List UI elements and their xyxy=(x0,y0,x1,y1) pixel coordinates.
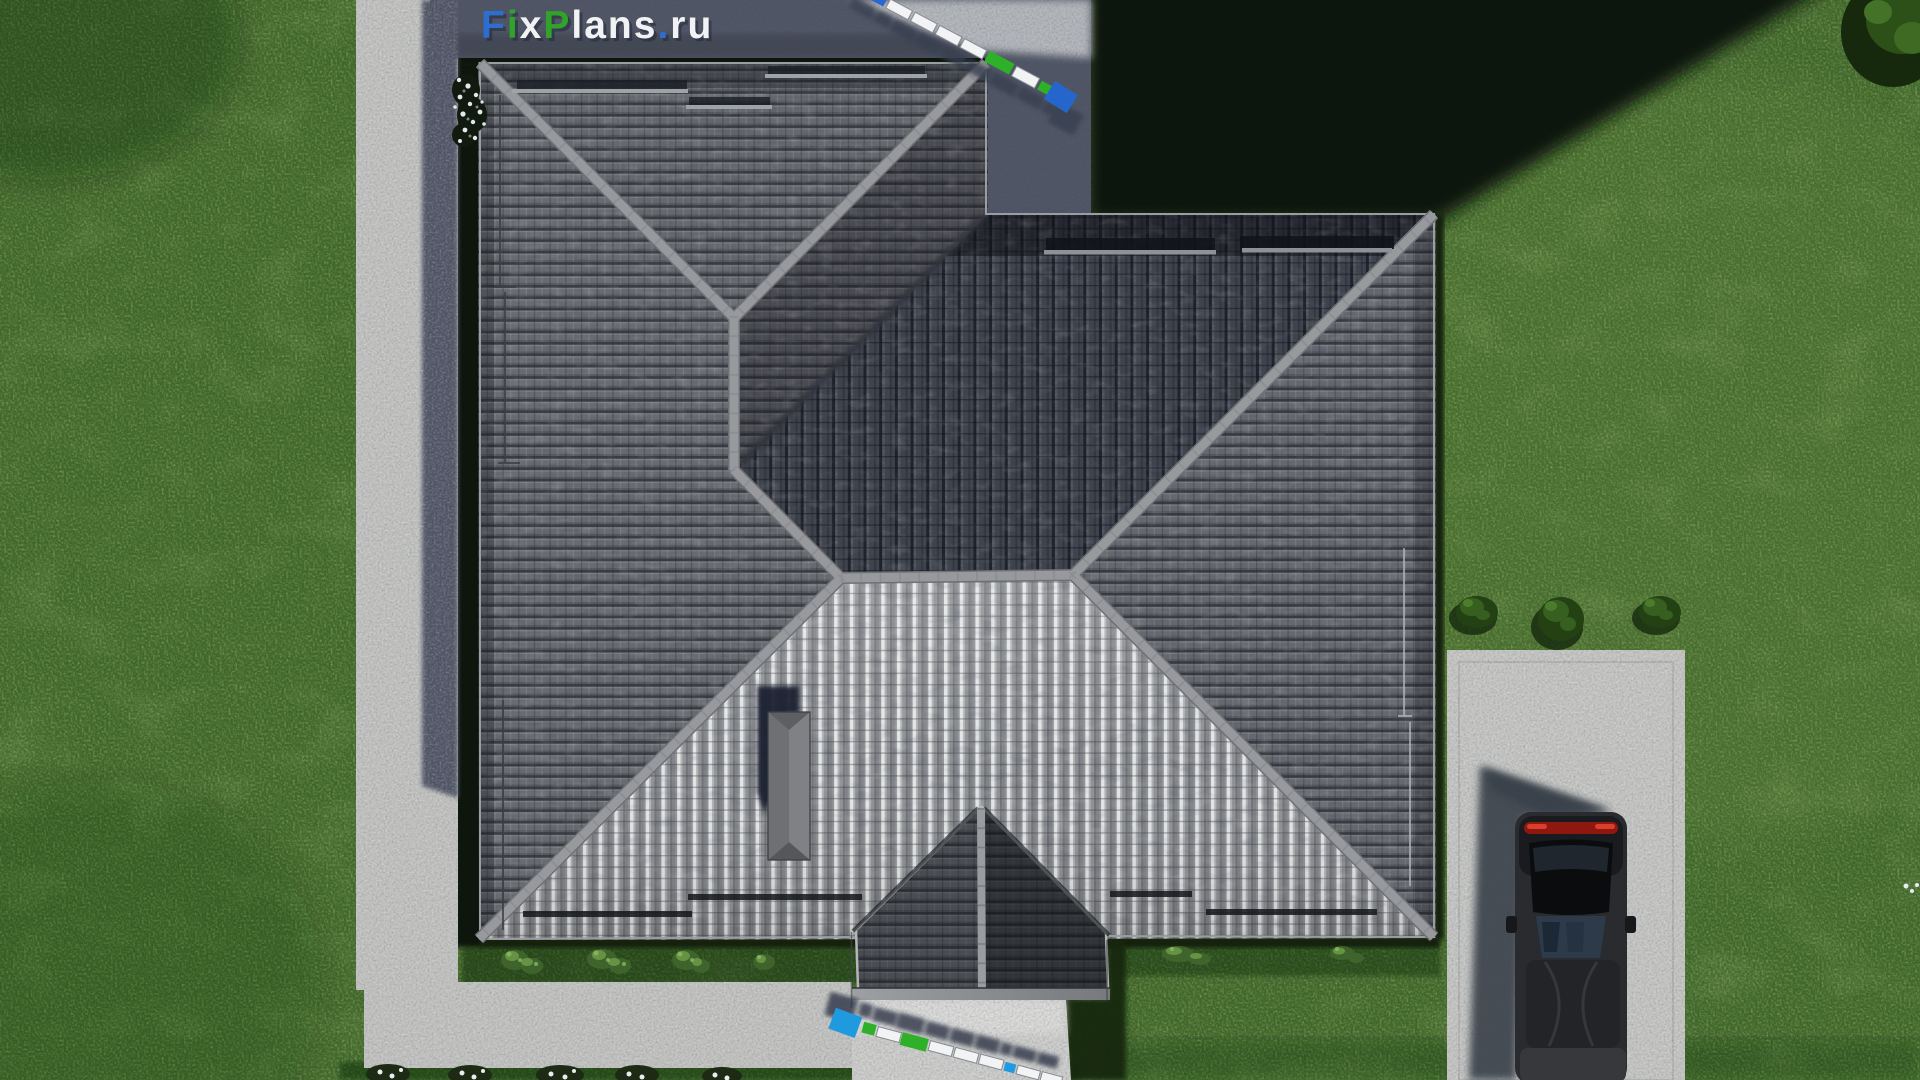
svg-text:FixPlans.ru: FixPlans.ru xyxy=(481,4,713,47)
